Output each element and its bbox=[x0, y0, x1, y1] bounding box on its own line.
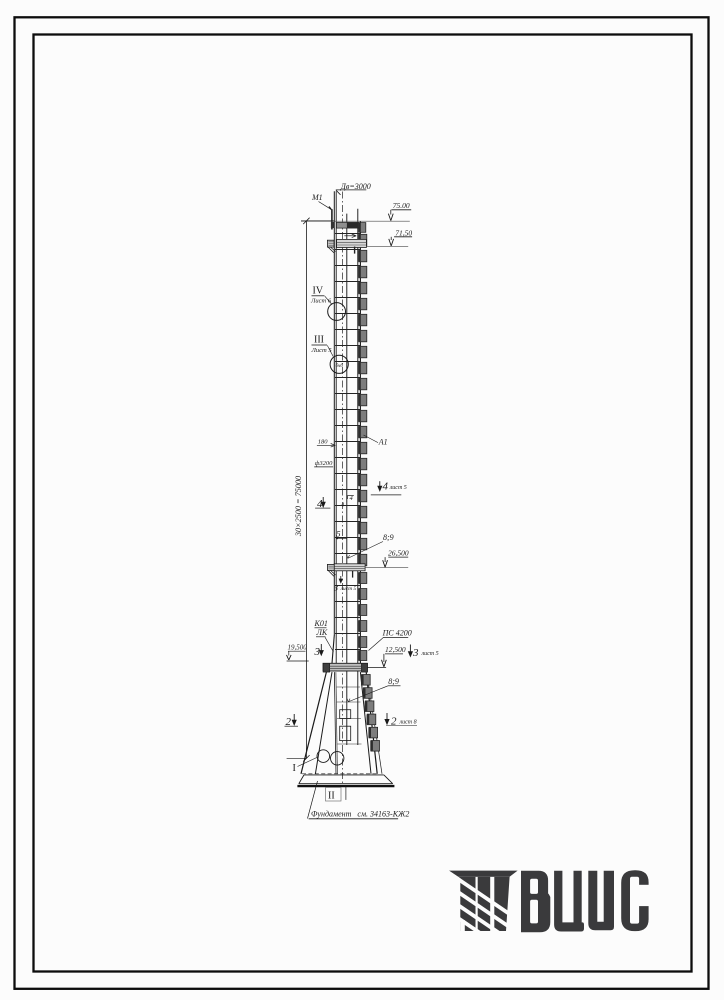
svg-text:лист 5: лист 5 bbox=[421, 651, 439, 657]
svg-text:5: 5 bbox=[336, 529, 340, 539]
svg-text:2: 2 bbox=[391, 716, 397, 728]
svg-text:I: I bbox=[293, 763, 296, 774]
svg-text:4: 4 bbox=[350, 495, 354, 502]
svg-text:12,500: 12,500 bbox=[385, 645, 406, 654]
svg-text:ПС 4200: ПС 4200 bbox=[382, 629, 412, 638]
svg-text:лист 5: лист 5 bbox=[340, 586, 357, 592]
svg-text:4: 4 bbox=[341, 502, 345, 509]
svg-text:III: III bbox=[314, 335, 324, 346]
svg-text:Лист 5: Лист 5 bbox=[311, 347, 333, 354]
svg-text:II: II bbox=[328, 791, 335, 802]
svg-text:30×2500 = 75000: 30×2500 = 75000 bbox=[294, 476, 303, 537]
svg-text:М1: М1 bbox=[311, 193, 323, 202]
svg-text:3: 3 bbox=[333, 584, 338, 593]
svg-text:лист 5: лист 5 bbox=[389, 485, 407, 491]
svg-text:К01: К01 bbox=[314, 619, 328, 628]
svg-text:IV: IV bbox=[313, 286, 324, 297]
svg-text:8;9: 8;9 bbox=[383, 533, 394, 542]
svg-text:26,500: 26,500 bbox=[388, 548, 409, 557]
svg-text:71,50: 71,50 bbox=[395, 228, 412, 237]
svg-text:Дв=3000: Дв=3000 bbox=[340, 182, 371, 191]
svg-text:3: 3 bbox=[412, 647, 419, 659]
svg-text:8;9: 8;9 bbox=[388, 677, 399, 686]
svg-text:Фундамент см. 34163-КЖ2: Фундамент см. 34163-КЖ2 bbox=[311, 810, 409, 819]
svg-text:75.00: 75.00 bbox=[393, 201, 410, 210]
svg-text:180: 180 bbox=[318, 439, 329, 446]
svg-text:лист 8: лист 8 bbox=[399, 720, 417, 726]
svg-text:А1: А1 bbox=[378, 437, 388, 446]
svg-text:бчб: бчб bbox=[336, 364, 344, 369]
svg-text:4: 4 bbox=[383, 481, 389, 493]
svg-text:19,500: 19,500 bbox=[288, 643, 308, 651]
svg-text:ЛК: ЛК bbox=[316, 628, 328, 637]
svg-text:ф3200: ф3200 bbox=[315, 460, 333, 467]
